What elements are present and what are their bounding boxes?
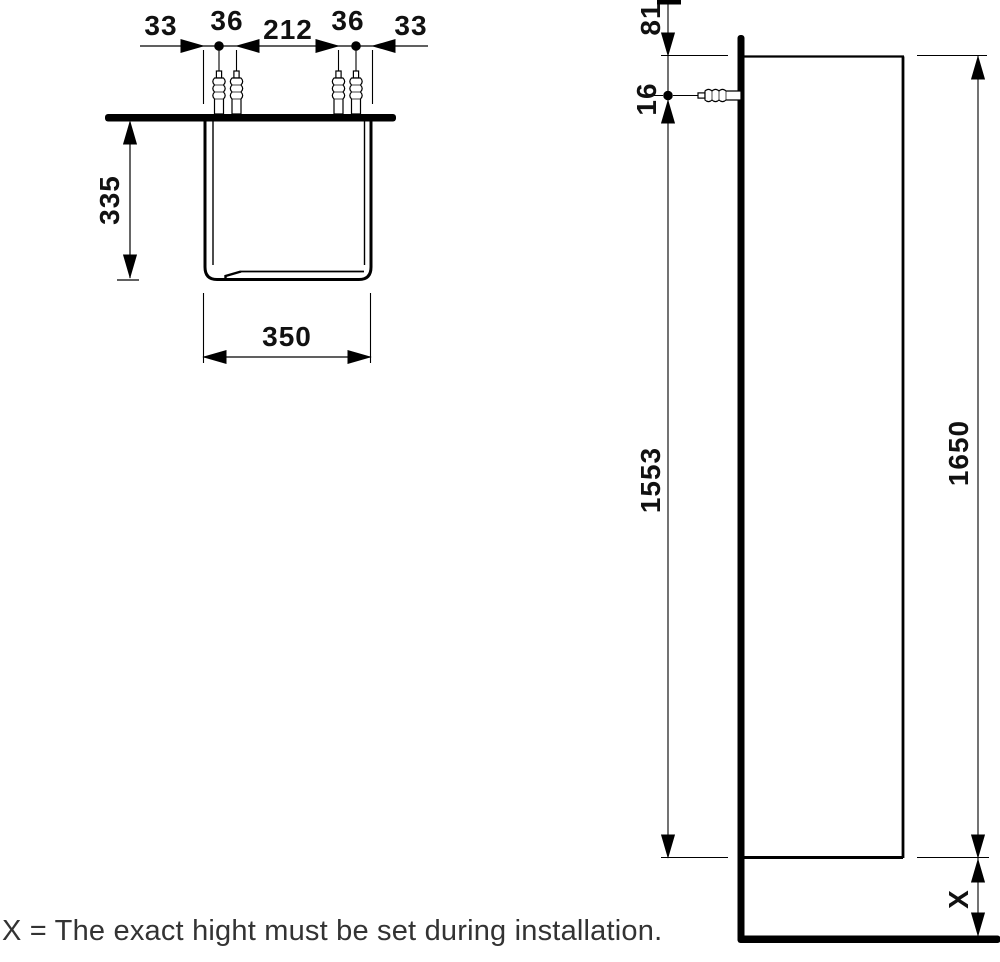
dim-arrow-left	[373, 40, 395, 53]
wall-plug	[213, 71, 225, 114]
dim-arrow-right	[348, 351, 370, 364]
dim-dot	[352, 42, 361, 51]
dim-label-depth: 335	[94, 175, 125, 225]
dim-label-plug-span: 212	[263, 14, 313, 45]
wall-plug	[350, 71, 362, 114]
dim-arrow-up	[662, 101, 675, 123]
wall-section-side-view	[738, 35, 745, 942]
wall-plug	[698, 89, 741, 101]
dim-label-cabinet-height: 1650	[943, 420, 974, 486]
dim-label-top-offset: 81	[635, 2, 666, 35]
dim-arrow-right	[316, 40, 338, 53]
dim-arrow-up	[972, 860, 985, 882]
dim-label-margin-right: 33	[394, 10, 427, 41]
dim-label-plug-pair-left: 36	[210, 5, 243, 36]
dim-label-plug-to-bottom: 1553	[635, 447, 666, 513]
cabinet-carcass-outline	[205, 121, 371, 280]
dim-arrow-left	[204, 351, 226, 364]
dimension-chain-top	[140, 40, 428, 104]
door-hinge-edge	[226, 272, 242, 280]
top-view: 33 36 212 36 33 335 350	[94, 5, 428, 363]
dim-dot	[664, 91, 673, 100]
wall-plug	[332, 71, 344, 114]
dim-label-margin-left: 33	[144, 10, 177, 41]
wall-section-top-view	[105, 114, 396, 122]
dim-label-plug-drop: 16	[631, 82, 662, 115]
dim-label-floor-clearance: X	[943, 889, 974, 909]
dim-arrow-down	[972, 835, 985, 857]
dim-dot	[215, 42, 224, 51]
wall-plug	[230, 71, 242, 114]
dim-arrow-right	[181, 40, 203, 53]
dim-arrow-left	[237, 40, 259, 53]
dim-arrow-up	[972, 57, 985, 79]
dimension-chain-left	[651, 0, 728, 858]
installation-drawing: 33 36 212 36 33 335 350	[0, 0, 1000, 962]
side-view: 81 16 1553 1650 X	[631, 0, 1000, 943]
dim-arrow-up	[124, 122, 137, 144]
dim-label-width: 350	[262, 321, 312, 352]
dim-label-plug-pair-right: 36	[331, 5, 364, 36]
dim-arrow-down	[662, 835, 675, 857]
installation-note: X = The exact hight must be set during i…	[2, 915, 982, 948]
dim-arrow-down	[124, 255, 137, 277]
drawing-canvas: 33 36 212 36 33 335 350	[0, 0, 1000, 962]
